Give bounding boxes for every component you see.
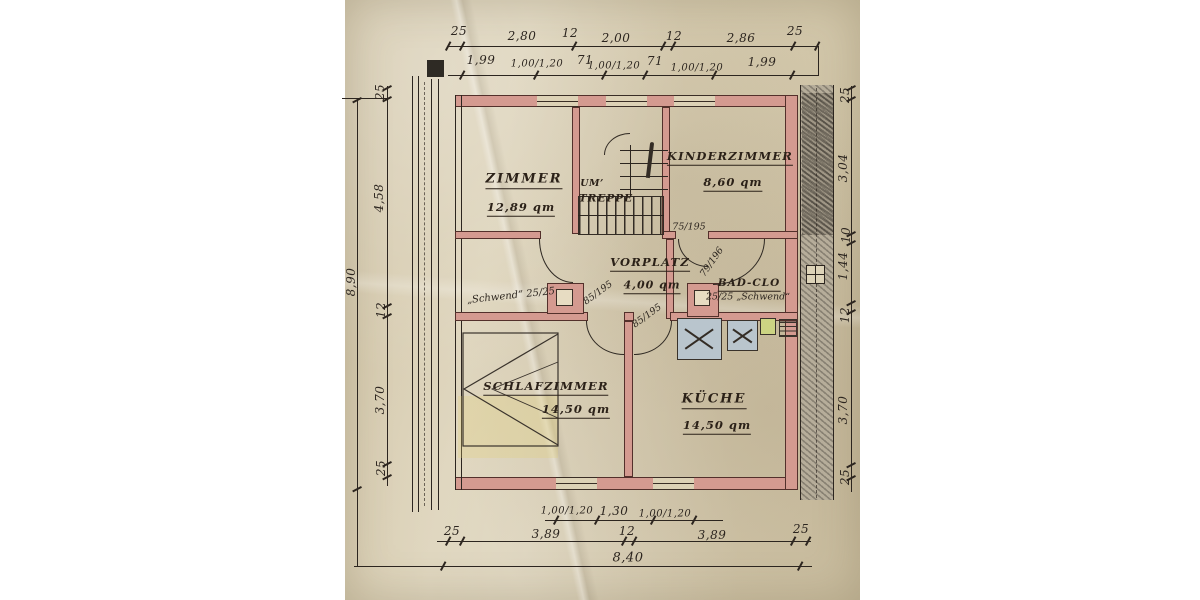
dim-label: 4,58 — [372, 184, 386, 213]
dim-connector — [818, 46, 819, 76]
dim-label: 1,00/1,20 — [671, 63, 723, 74]
dim-label: 12 — [619, 524, 635, 538]
dim-label: 25 — [787, 24, 803, 38]
room-label-vorplatz: VORPLATZ — [610, 255, 690, 272]
dim-label-total: 8,90 — [344, 268, 358, 297]
dim-label: 2,86 — [727, 31, 756, 45]
wall-bottom — [455, 477, 798, 490]
stair-rung — [620, 176, 668, 177]
dim-label: 1,99 — [467, 53, 496, 67]
dim-label: 25 — [838, 87, 852, 103]
dim-label: 2,00 — [602, 31, 631, 45]
stair-tread-divider — [578, 215, 664, 216]
dim-label: 1,00/1,20 — [511, 59, 563, 70]
dim-line-left-outer — [357, 98, 358, 566]
wall-corner-block — [427, 60, 444, 77]
kitchen-green-unit — [760, 318, 776, 335]
room-label-bad: BAD-CLO — [718, 277, 781, 292]
party-wall-line — [412, 76, 413, 512]
room-label-zimmer: ZIMMER — [485, 171, 562, 189]
dim-line-top-outer — [448, 46, 818, 47]
dim-label: 1,99 — [748, 55, 777, 69]
chimney-left-flue — [556, 289, 573, 306]
room-label-schlafzimmer: SCHLAFZIMMER — [483, 379, 608, 396]
dim-label: 3,89 — [532, 527, 561, 541]
room-area-zimmer: 12,89 qm — [487, 200, 555, 217]
dim-label: 10 — [839, 227, 853, 243]
wall-schlafzimmer-kueche — [624, 321, 633, 477]
dim-label: 1,00/1,20 — [541, 506, 593, 517]
dim-label: 25 — [838, 469, 852, 485]
dim-label: 1,00/1,20 — [588, 61, 640, 72]
dim-label: 3,70 — [836, 396, 850, 425]
party-wall-axis — [424, 82, 425, 506]
window — [556, 477, 597, 490]
dim-label: 12 — [562, 26, 578, 40]
dim-label: 3,70 — [373, 386, 387, 415]
stair-rung — [620, 163, 668, 164]
party-wall-line — [438, 79, 439, 510]
wall-left-line — [455, 95, 456, 490]
dim-label: 12 — [666, 29, 682, 43]
dim-label: 1,44 — [836, 252, 850, 281]
window — [653, 477, 694, 490]
dim-label: 25 — [793, 522, 809, 536]
room-area-schlafzimmer: 14,50 qm — [542, 402, 610, 419]
dim-line-bottom-windows — [545, 520, 723, 521]
party-wall-line — [418, 76, 419, 512]
room-label-kinderzimmer: KINDERZIMMER — [667, 149, 793, 166]
room-label-kueche: KÜCHE — [682, 391, 747, 409]
hatched-axis — [816, 88, 817, 498]
room-area-kueche: 14,50 qm — [683, 418, 751, 435]
dim-label: 12 — [838, 307, 852, 323]
dim-label: 12 — [374, 302, 388, 318]
window — [674, 95, 715, 107]
dim-label: 25 — [373, 84, 387, 100]
dim-line-left-inner — [387, 86, 388, 486]
wall-bad-top — [708, 231, 798, 239]
dim-label-total: 8,40 — [613, 551, 644, 566]
window — [606, 95, 647, 107]
stair-rail — [630, 145, 631, 197]
dim-label: 3,04 — [836, 154, 850, 183]
window — [537, 95, 578, 107]
kitchen-hatched-unit — [779, 319, 797, 337]
shaft-window — [806, 265, 825, 284]
party-wall-line — [431, 79, 432, 510]
dim-line-bottom-total — [354, 566, 812, 567]
wall-zimmer-vorplatz — [455, 231, 541, 239]
door-size-kinderzimmer: 75/195 — [672, 222, 705, 233]
dim-label: 25 — [444, 524, 460, 538]
dim-line-top-inner — [448, 75, 818, 76]
room-label-treppe-prefix: UM’ — [580, 178, 604, 191]
floor-plan-scan: 25 2,80 12 2,00 12 2,86 25 1,99 1,00/1,2… — [0, 0, 1200, 600]
kitchen-stove — [677, 318, 722, 360]
dim-label: 1,00/1,20 — [639, 509, 691, 520]
stair-rung — [620, 189, 668, 190]
kitchen-sink — [727, 320, 758, 351]
room-label-treppe: TREPPE — [579, 192, 633, 206]
room-area-kinderzimmer: 8,60 qm — [703, 175, 762, 192]
hatched-dark-area — [802, 93, 833, 235]
dim-label: 25 — [451, 24, 467, 38]
room-area-vorplatz: 4,00 qm — [624, 278, 681, 294]
dim-label: 25 — [374, 460, 388, 476]
dim-label: 71 — [647, 54, 663, 68]
dim-line-right — [851, 86, 852, 492]
dim-label: 3,89 — [698, 528, 727, 542]
chimney-note-right: 25/25 „Schwend“ — [706, 292, 790, 303]
dim-label: 1,30 — [600, 504, 629, 518]
dim-label: 2,80 — [508, 29, 537, 43]
